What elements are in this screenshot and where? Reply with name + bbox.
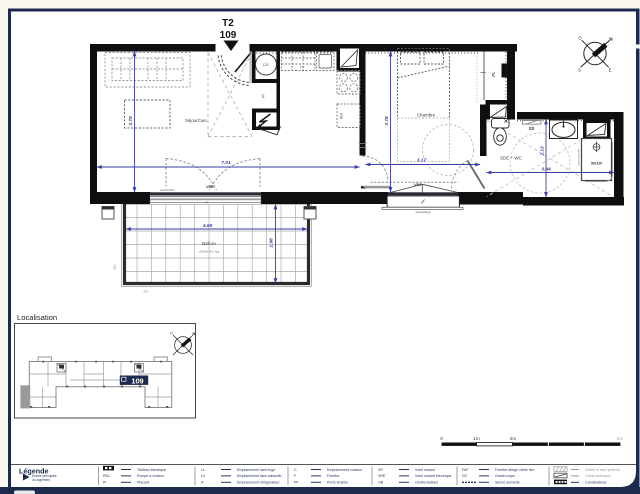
svg-text:Localisation: Localisation <box>17 313 57 322</box>
svg-text:C.E.: C.E. <box>263 63 270 67</box>
svg-text:SDE + WC: SDE + WC <box>500 156 523 161</box>
svg-text:PF: PF <box>294 481 299 485</box>
svg-text:Tableau électrique: Tableau électrique <box>137 468 166 472</box>
svg-text:2.13: 2.13 <box>540 146 546 157</box>
svg-text:44: 44 <box>205 201 209 205</box>
svg-text:OB: OB <box>378 481 384 485</box>
svg-text:Emplacement réfrigérateur: Emplacement réfrigérateur <box>237 481 280 485</box>
svg-text:GC: GC <box>143 290 149 294</box>
svg-text:3.79: 3.79 <box>128 116 134 126</box>
svg-text:PAC: PAC <box>103 474 111 478</box>
svg-text:Balcon: Balcon <box>202 241 216 246</box>
svg-text:SS: SS <box>529 126 535 131</box>
svg-text:7.01: 7.01 <box>221 160 231 166</box>
svg-text:Ref.: Ref. <box>340 112 344 119</box>
svg-text:pare douche: pare douche <box>577 148 581 166</box>
svg-text:VR: VR <box>378 468 383 472</box>
svg-text:Emplacement cuisson: Emplacement cuisson <box>327 468 362 472</box>
svg-text:VRE: VRE <box>378 474 386 478</box>
svg-text:GC: GC <box>113 264 117 270</box>
svg-text:Fenêtre: Fenêtre <box>327 474 339 478</box>
svg-text:SéjourCuis.: SéjourCuis. <box>185 118 208 123</box>
svg-text:LV: LV <box>201 474 206 478</box>
svg-text:seuil allège: seuil allège <box>415 210 430 214</box>
svg-text:Soffite et faux plafond: Soffite et faux plafond <box>585 468 620 472</box>
svg-text:109: 109 <box>220 30 237 41</box>
svg-text:Volet roulant: Volet roulant <box>415 468 435 472</box>
svg-text:109: 109 <box>131 376 143 385</box>
svg-text:Pompe à chaleur: Pompe à chaleur <box>137 474 165 478</box>
svg-text:1m: 1m <box>473 436 480 441</box>
svg-text:T2: T2 <box>222 18 234 29</box>
svg-text:0: 0 <box>440 436 443 441</box>
svg-text:O: O <box>170 332 173 336</box>
svg-text:Fenêtre allège vitrée fixe: Fenêtre allège vitrée fixe <box>495 468 534 472</box>
svg-text:R: R <box>201 481 204 485</box>
svg-text:C: C <box>294 468 297 472</box>
svg-text:Gaine technique: Gaine technique <box>585 474 611 478</box>
svg-text:Sèche serviette: Sèche serviette <box>495 481 520 485</box>
svg-text:+0.06m Niv. log.: +0.06m Niv. log. <box>198 250 220 254</box>
svg-text:PL: PL <box>491 71 496 77</box>
svg-text:Pl: Pl <box>103 481 106 485</box>
svg-text:seuil ht 8cm: seuil ht 8cm <box>160 188 176 192</box>
svg-text:Chambre: Chambre <box>417 113 436 118</box>
svg-text:Emplacement lave linge: Emplacement lave linge <box>237 468 275 472</box>
svg-text:Volet roulant électrique: Volet roulant électrique <box>415 474 452 478</box>
svg-text:Emplacement lave-vaisselle: Emplacement lave-vaisselle <box>237 474 282 478</box>
svg-text:90x120: 90x120 <box>591 162 602 166</box>
svg-text:VRE: VRE <box>206 185 214 189</box>
svg-text:1.98: 1.98 <box>269 238 275 248</box>
svg-text:N: N <box>609 37 613 43</box>
svg-text:Porte fenêtre: Porte fenêtre <box>327 481 348 485</box>
svg-text:du logement: du logement <box>32 478 50 482</box>
svg-text:5m: 5m <box>617 436 624 441</box>
svg-text:GC: GC <box>462 474 468 478</box>
svg-text:Canalisations: Canalisations <box>585 481 607 485</box>
svg-text:Placard: Placard <box>137 481 149 485</box>
svg-text:FAF: FAF <box>462 468 469 472</box>
svg-text:3.17: 3.17 <box>417 158 427 164</box>
svg-text:E: E <box>609 68 612 73</box>
svg-text:2m: 2m <box>510 436 517 441</box>
svg-text:Pl: Pl <box>262 94 266 98</box>
svg-text:N: N <box>193 331 196 336</box>
svg-text:4.65: 4.65 <box>202 223 213 229</box>
svg-text:Garde-corps: Garde-corps <box>495 474 515 478</box>
svg-text:Oscillo-battant: Oscillo-battant <box>415 481 438 485</box>
svg-text:S: S <box>578 68 581 73</box>
svg-text:3.44: 3.44 <box>541 167 551 173</box>
svg-text:LL: LL <box>201 468 205 472</box>
svg-text:3.78: 3.78 <box>384 116 390 126</box>
